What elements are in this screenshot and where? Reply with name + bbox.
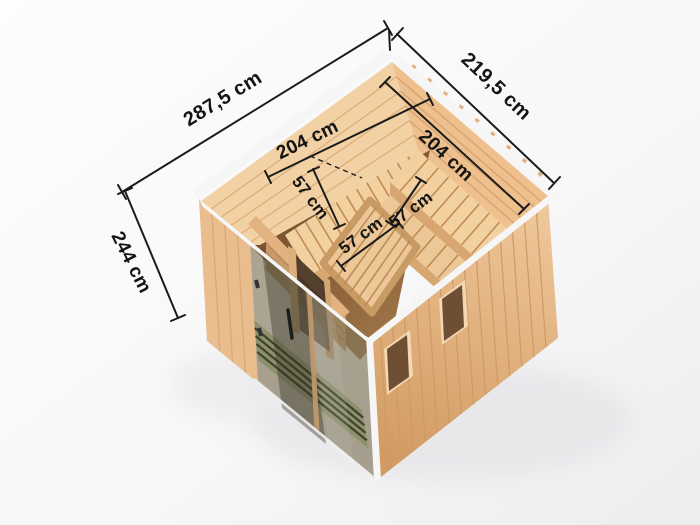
sauna-product-illustration: 287,5 cm 219,5 cm 244 cm 204 cm 204 cm: [0, 0, 700, 525]
sauna-dimension-drawing: 287,5 cm 219,5 cm 244 cm 204 cm 204 cm: [0, 0, 700, 525]
door-hinge-top: [256, 280, 258, 288]
door-hinge-bottom: [259, 328, 261, 336]
